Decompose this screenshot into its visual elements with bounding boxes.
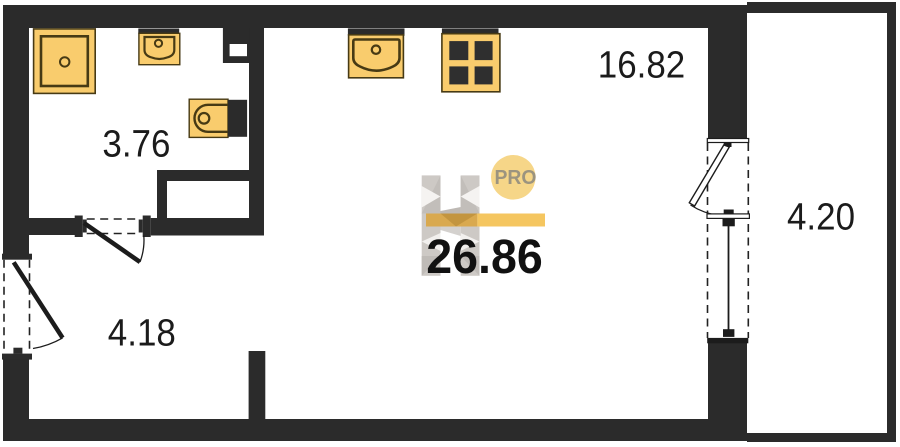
svg-text:16.82: 16.82: [598, 43, 685, 86]
svg-text:3.76: 3.76: [102, 122, 170, 165]
svg-text:4.18: 4.18: [108, 311, 176, 354]
svg-text:PRO: PRO: [494, 167, 536, 189]
svg-text:26.86: 26.86: [426, 231, 542, 285]
svg-text:4.20: 4.20: [787, 195, 855, 238]
